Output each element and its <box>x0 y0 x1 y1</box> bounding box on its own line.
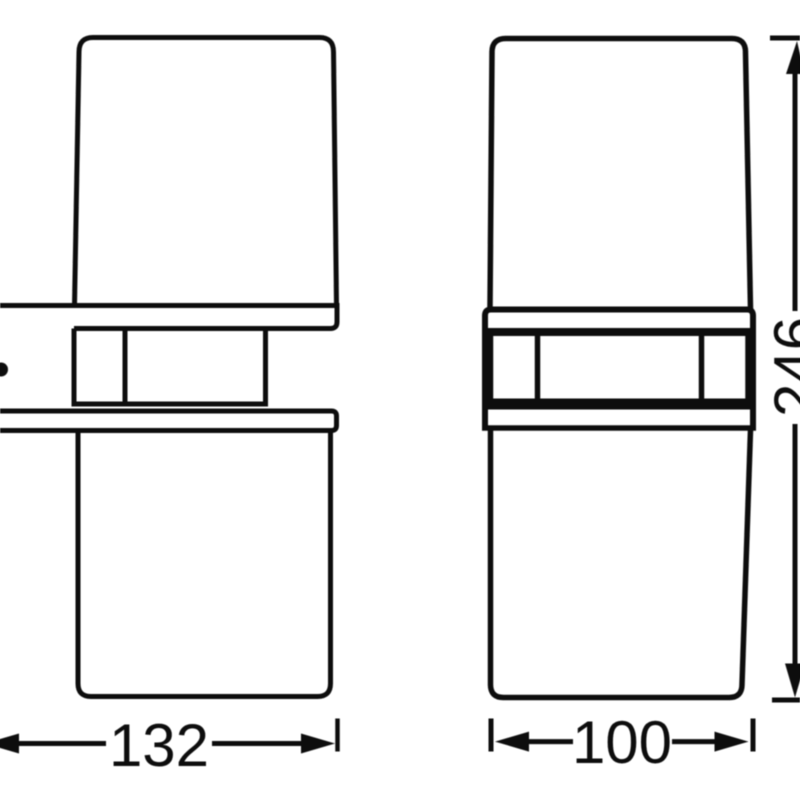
svg-text:132: 132 <box>109 712 209 779</box>
svg-text:246: 246 <box>762 317 800 417</box>
svg-text:100: 100 <box>572 709 672 776</box>
